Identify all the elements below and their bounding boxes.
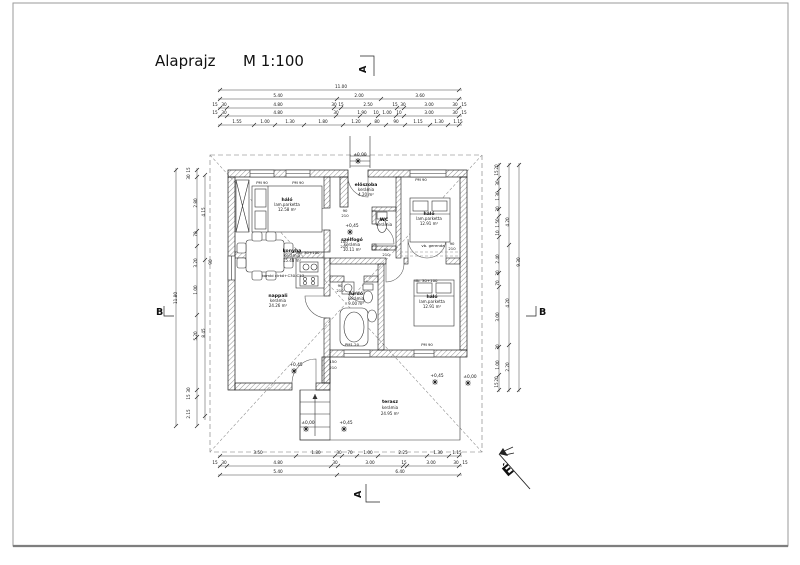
dim-labels-v-label: 20 (494, 164, 499, 170)
elevation-star-icon (291, 368, 297, 374)
elevation-marks-label: ±0,00 (463, 374, 476, 380)
dim-labels-v-label: 1.30 (495, 191, 500, 201)
elevation-marks-label: +0,45 (345, 223, 358, 229)
dim-labels-v-label: 4.15 (201, 207, 206, 217)
dim-labels-h-label: 15 (338, 102, 344, 107)
dim-labels-v-label: 70 (193, 231, 198, 237)
dim-labels-h-label: 1.15 (452, 450, 462, 455)
dim-labels-h-label: 4.80 (273, 102, 283, 107)
dim-labels-h-label: 1.90 (357, 110, 367, 115)
dim-labels-h-label: 1.80 (311, 450, 321, 455)
elevation-marks-label: +0,45 (339, 420, 352, 426)
dim-labels-v-label: 15 (186, 394, 191, 400)
dim-labels-v-label: 3.00 (495, 312, 500, 322)
dim-labels-v-label: 9.30 (516, 257, 521, 267)
window (286, 170, 310, 177)
elevation-star-icon (347, 229, 353, 235)
elevation-marks-label: ±0,00 (353, 152, 366, 158)
dim-labels-h-label: 30 (221, 460, 227, 465)
dim-labels-v-label: 30 (495, 270, 500, 276)
dim-labels-h-label: 2.50 (363, 102, 373, 107)
dim-labels-h-label: 90 (393, 119, 399, 124)
window (250, 170, 274, 177)
dim-labels-h-label: 30 (453, 460, 459, 465)
window-labels-label: PM 90 (421, 342, 433, 347)
toilet-bathroom (363, 284, 373, 303)
dim-labels-v-label: 11.80 (173, 292, 178, 304)
floor-plan-page: Alaprajz M 1:100 A A B B É (0, 0, 800, 565)
room-area: 15.48 m² (283, 258, 302, 263)
window (344, 350, 370, 357)
window-labels-label: PM1.20 (345, 342, 360, 347)
dim-labels-v-label: 90 (208, 259, 213, 265)
dim-labels-h-label: 30 (221, 110, 227, 115)
dim-labels-h-label: 15 (461, 102, 467, 107)
dim-labels-h-label: 1.80 (318, 119, 328, 124)
dim-labels-h-label: 11.00 (335, 84, 347, 89)
dim-labels-v-label: 4.20 (505, 217, 510, 227)
dim-labels-h-label: 1.55 (232, 119, 242, 124)
dim-labels-v-label: 1.50 (495, 218, 500, 228)
dim-labels-h-label: 30 (333, 110, 339, 115)
dim-labels-h-label: 30 (452, 110, 458, 115)
dim-labels-h-label: 30 (332, 460, 338, 465)
dim-labels-h-label: 1.20 (351, 119, 361, 124)
elevation-star-icon (303, 426, 309, 432)
room-floor: kerámia (376, 222, 393, 227)
dim-labels-h-label: 15 (212, 110, 218, 115)
dim-labels-h-label: 2.25 (398, 450, 408, 455)
door-sizes-label: 210 (336, 288, 344, 293)
dim-labels-h-label: 80 (374, 119, 380, 124)
dim-labels-h-label: 3.50 (253, 450, 263, 455)
door-sizes-label: 210 (382, 252, 390, 257)
door-sizes-label: 150 (329, 359, 337, 364)
dim-labels-v-label: 15 (494, 170, 499, 176)
dim-labels-h-label: 15 (461, 110, 467, 115)
dim-labels-v-label: 30 (495, 344, 500, 350)
dim-labels-v-label: 1.00 (495, 360, 500, 370)
door-sizes-label: 210 (340, 244, 348, 249)
dim-labels-h-label: 1.00 (382, 110, 392, 115)
room-area: 9.00 m² (348, 301, 364, 306)
door-sizes-label: 210 (341, 213, 349, 218)
room-area: 24.95 m² (381, 411, 400, 416)
dim-labels-h-label: 1.00 (260, 119, 270, 124)
room-area: 12.58 m² (278, 207, 297, 212)
dim-labels-h-label: 3.00 (365, 460, 375, 465)
dim-labels-v-label: 30 (186, 387, 191, 393)
dim-labels-h-label: 6.40 (395, 469, 405, 474)
svg-text:A: A (358, 65, 369, 73)
elevation-star-icon (341, 426, 347, 432)
elevation-marks-label: +0,45 (289, 362, 302, 368)
dim-labels-v-label: 1.00 (193, 285, 198, 295)
notes-label: db. 30+100 (296, 250, 320, 255)
notes-label: db. 30+100 (414, 278, 438, 283)
dim-labels-h-label: 15 (212, 460, 218, 465)
dim-labels-h-label: 2.00 (354, 93, 364, 98)
dim-labels-v-label: 2.20 (505, 362, 510, 372)
dim-labels-h-label: 4.80 (273, 460, 283, 465)
dim-labels-h-label: 15 (392, 102, 398, 107)
notes-label: kombi cirkó+C30-C53 (262, 273, 305, 278)
dim-labels-h-label: 10 (373, 110, 379, 115)
dim-labels-h-label: 30 (221, 102, 227, 107)
dim-labels-h-label: 1.30 (433, 450, 443, 455)
window (410, 170, 446, 177)
dim-labels-h-label: 1.30 (434, 119, 444, 124)
dim-labels-h-label: 30 (331, 102, 337, 107)
drawing-title: Alaprajz (155, 52, 216, 70)
dim-labels-v-label: 30 (495, 180, 500, 186)
svg-text:A: A (353, 490, 364, 498)
bathtub (340, 308, 368, 346)
room-area: 12.91 m² (423, 304, 442, 309)
window-labels-label: PM 90 (415, 177, 427, 182)
dim-labels-h-label: 70 (347, 450, 353, 455)
dim-labels-v-label: 8.45 (201, 328, 206, 338)
room-area: 24.26 m² (269, 303, 288, 308)
dim-labels-h-label: 3.00 (426, 460, 436, 465)
elevation-star-icon (465, 380, 471, 386)
svg-text:B: B (539, 307, 546, 318)
window (414, 350, 434, 357)
dim-labels-v-label: 30 (495, 206, 500, 212)
dim-labels-h-label: 1.15 (453, 119, 463, 124)
washbasin (368, 310, 377, 322)
dim-labels-h-label: 30 (452, 102, 458, 107)
floor-plan-drawing: Alaprajz M 1:100 A A B B É (0, 0, 800, 565)
dim-labels-h-label: 1.15 (413, 119, 423, 124)
door-sizes-label: 210 (448, 246, 456, 251)
dim-labels-v-label: 2.40 (495, 254, 500, 264)
dim-labels-h-label: 3.00 (424, 102, 434, 107)
dim-labels-v-label: 15 (494, 382, 499, 388)
dim-labels-v-label: 30 (186, 174, 191, 180)
dim-labels-h-label: 15 (401, 460, 407, 465)
dim-labels-h-label: 10 (396, 110, 402, 115)
dim-labels-v-label: 4.20 (505, 298, 510, 308)
dim-labels-v-label: 2.15 (186, 409, 191, 419)
door-sizes-label: 210 (329, 365, 337, 370)
notes-label: vb. gerenda (421, 243, 445, 248)
dim-labels-v-label: 2.80 (193, 198, 198, 208)
room-area: 4.20 m² (358, 192, 374, 197)
dim-labels-h-label: 15 (462, 460, 468, 465)
dim-labels-v-label: 5.20 (193, 331, 198, 341)
dim-labels-h-label: 3.60 (415, 93, 425, 98)
dim-labels-h-label: 30 (400, 102, 406, 107)
dim-labels-v-label: 10 (495, 230, 500, 236)
wardrobe (236, 180, 249, 232)
dim-labels-v-label: 70 (495, 280, 500, 286)
window-labels-label: PM 90 (292, 180, 304, 185)
dim-labels-h-label: 5.40 (273, 93, 283, 98)
elevation-star-icon (432, 379, 438, 385)
dim-labels-h-label: 5.40 (273, 469, 283, 474)
dim-labels-h-label: 15 (212, 102, 218, 107)
dim-labels-v-label: 20 (494, 376, 499, 382)
dim-labels-h-label: 1.00 (363, 450, 373, 455)
svg-text:B: B (156, 307, 163, 318)
dim-labels-v-label: 3.20 (193, 258, 198, 268)
elevation-marks-label: ±0,00 (301, 420, 314, 426)
drawing-scale: M 1:100 (243, 52, 304, 70)
window-labels-label: PM 90 (256, 180, 268, 185)
window (228, 256, 235, 280)
elevation-star-icon (355, 158, 361, 164)
dim-labels-v-label: 15 (186, 167, 191, 173)
dim-labels-h-label: 4.80 (273, 110, 283, 115)
dim-labels-h-label: 3.00 (424, 110, 434, 115)
elevation-marks-label: +0,45 (430, 373, 443, 379)
dim-labels-h-label: 30 (336, 450, 342, 455)
room-floor: kerámia (382, 405, 399, 410)
dim-labels-h-label: 1.30 (285, 119, 295, 124)
room-area: 12.91 m² (420, 221, 439, 226)
